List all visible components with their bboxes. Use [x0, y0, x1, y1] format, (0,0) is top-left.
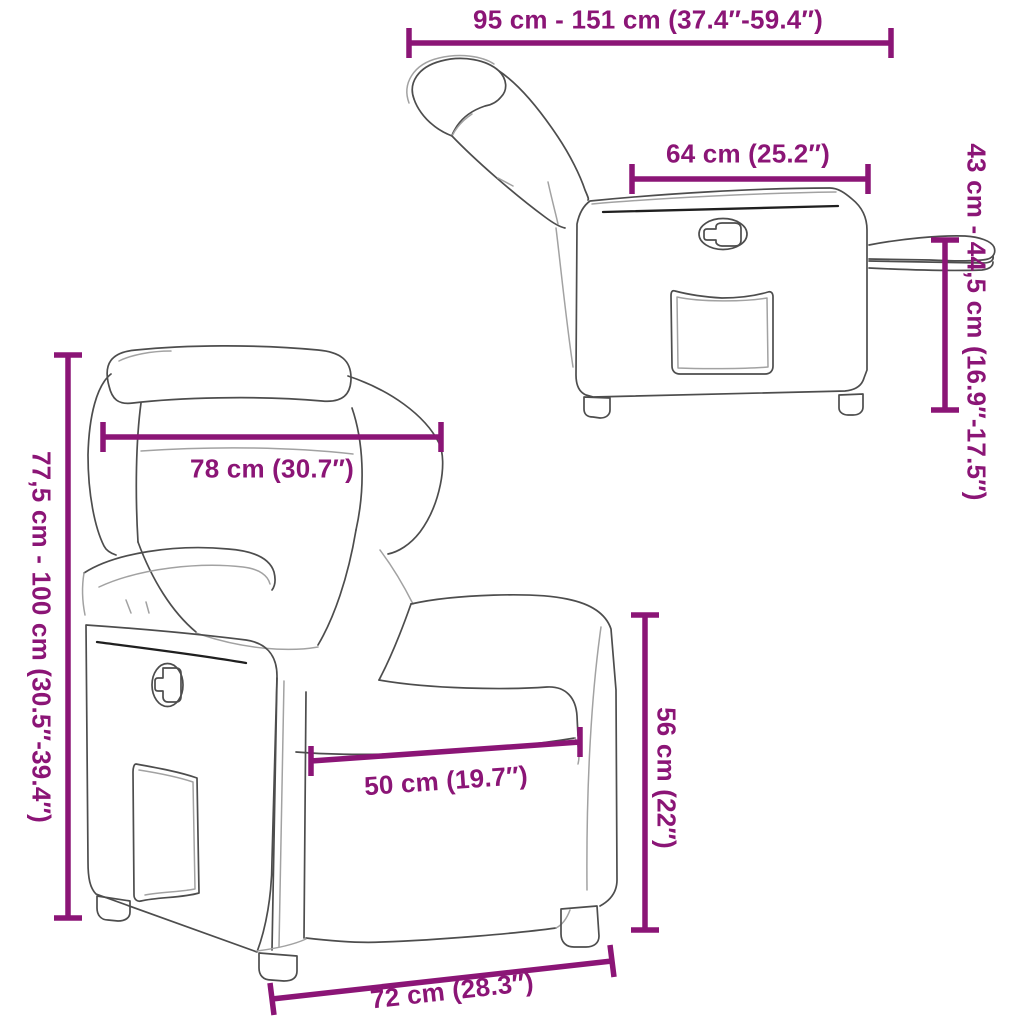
dim-overall-height-label: 77,5 cm - 100 cm (30.5″-39.4″) — [26, 451, 57, 823]
dimension-diagram: 95 cm - 151 cm (37.4″-59.4″) 64 cm (25.2… — [0, 0, 1024, 1024]
diagram-canvas — [0, 0, 1024, 1024]
dim-footrest-height-line — [931, 240, 959, 410]
dim-back-width-line — [103, 422, 441, 452]
dim-overall-length-label: 95 cm - 151 cm (37.4″-59.4″) — [473, 5, 823, 36]
recliner-side-view-drawing — [407, 56, 995, 418]
dim-overall-height-line — [54, 355, 82, 918]
recliner-front-view-drawing — [83, 346, 617, 981]
dimension-lines — [54, 28, 959, 1015]
dim-seat-unit-depth-label: 64 cm (25.2″) — [666, 139, 830, 170]
dim-armrest-height-label: 56 cm (22″) — [651, 707, 682, 849]
dim-footrest-height-label: 43 cm - 44,5 cm (16.9″-17.5″) — [961, 143, 992, 500]
dim-back-width-label: 78 cm (30.7″) — [190, 454, 354, 485]
